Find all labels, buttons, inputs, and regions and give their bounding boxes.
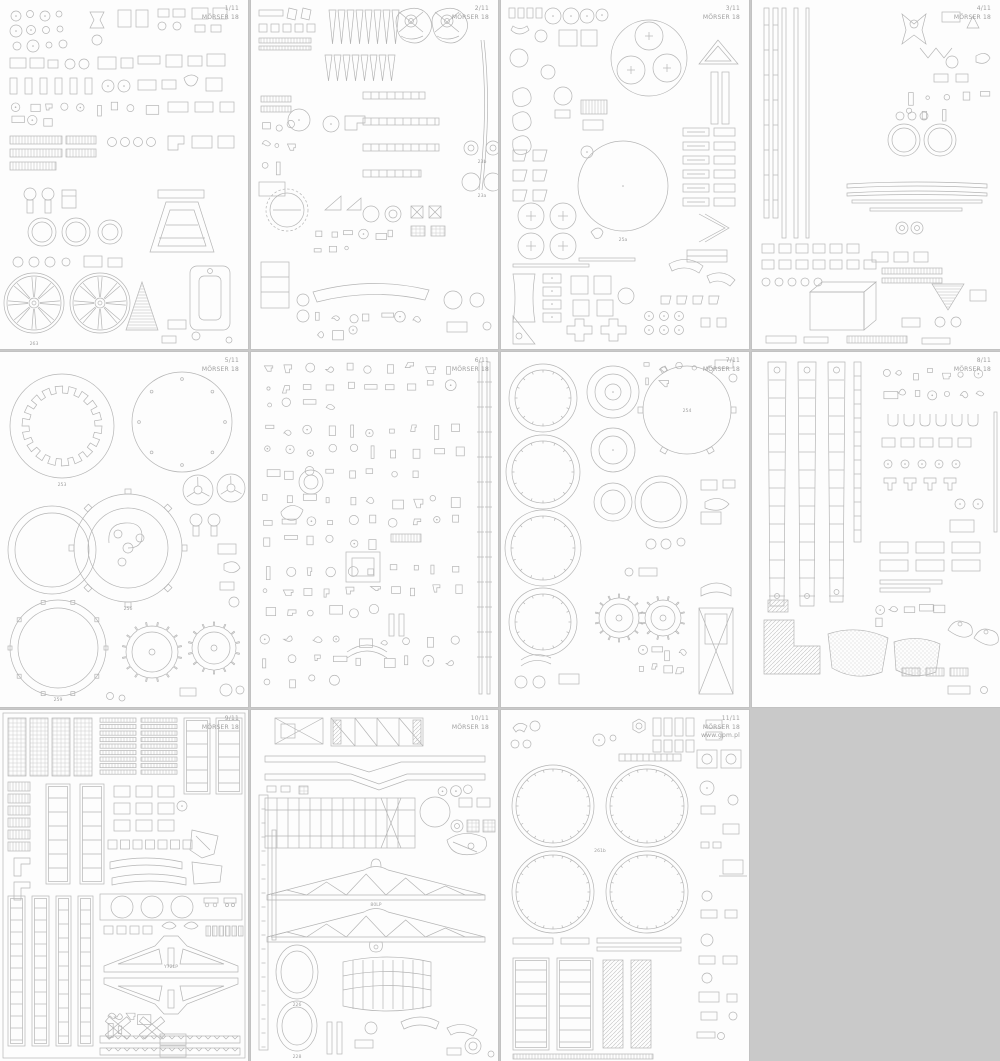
sheet-1-parts-drawing: 263 (0, 0, 248, 349)
parts-sheet-7: 254 7/11 MÖRSER 18 (501, 352, 749, 707)
sheet-4-parts-drawing (752, 0, 1000, 349)
part-number-label: 263 (30, 341, 39, 347)
sheet-10-parts-drawing: 80LP226228 (251, 710, 498, 1061)
parts-sheet-6: 6/11 MÖRSER 18 (251, 352, 498, 707)
parts-sheet-9: Y72LP 9/11 MÖRSER 18 (0, 710, 248, 1061)
part-number-label: 226 (293, 1002, 302, 1008)
parts-sheet-11: 261b 11/11 MÖRSER 18 www.gpm.pl (501, 710, 749, 1061)
part-number-label: 256 (124, 606, 133, 612)
sheet-9-parts-drawing: Y72LP (0, 710, 248, 1061)
part-number-label: 253 (58, 482, 67, 488)
sheet-5-parts-drawing: 253256259 (0, 352, 248, 707)
part-number-label: 23a (478, 193, 487, 199)
part-number-label: Y72LP (163, 964, 178, 970)
parts-sheet-3: 25a 3/11 MÖRSER 18 (501, 0, 749, 349)
sheet-3-parts-drawing: 25a (501, 0, 749, 349)
parts-sheet-4: 4/11 MÖRSER 18 (752, 0, 1000, 349)
sheet-7-parts-drawing: 254 (501, 352, 749, 707)
parts-sheet-8: 8/11 MÖRSER 18 (752, 352, 1000, 707)
parts-sheet-2: 23a23b 2/11 MÖRSER 18 (251, 0, 498, 349)
parts-sheet-10: 80LP226228 10/11 MÖRSER 18 (251, 710, 498, 1061)
part-number-label: 254 (683, 408, 692, 414)
part-number-label: 261b (594, 848, 606, 854)
sheet-2-parts-drawing: 23a23b (251, 0, 498, 349)
sheet-11-parts-drawing: 261b (501, 710, 749, 1061)
parts-sheet-1: 263 1/11 MÖRSER 18 (0, 0, 248, 349)
part-number-label: 259 (54, 697, 63, 703)
part-number-label: 80LP (370, 902, 381, 908)
part-number-label: 25a (619, 237, 628, 243)
sheet-6-parts-drawing (251, 352, 498, 707)
part-number-label: 228 (293, 1054, 302, 1060)
sheets-board: 263 1/11 MÖRSER 18 23a23b 2/11 MÖRSER 18… (0, 0, 1000, 1061)
parts-sheet-5: 253256259 5/11 MÖRSER 18 (0, 352, 248, 707)
part-number-label: 23b (478, 159, 487, 165)
sheet-8-parts-drawing (752, 352, 1000, 707)
